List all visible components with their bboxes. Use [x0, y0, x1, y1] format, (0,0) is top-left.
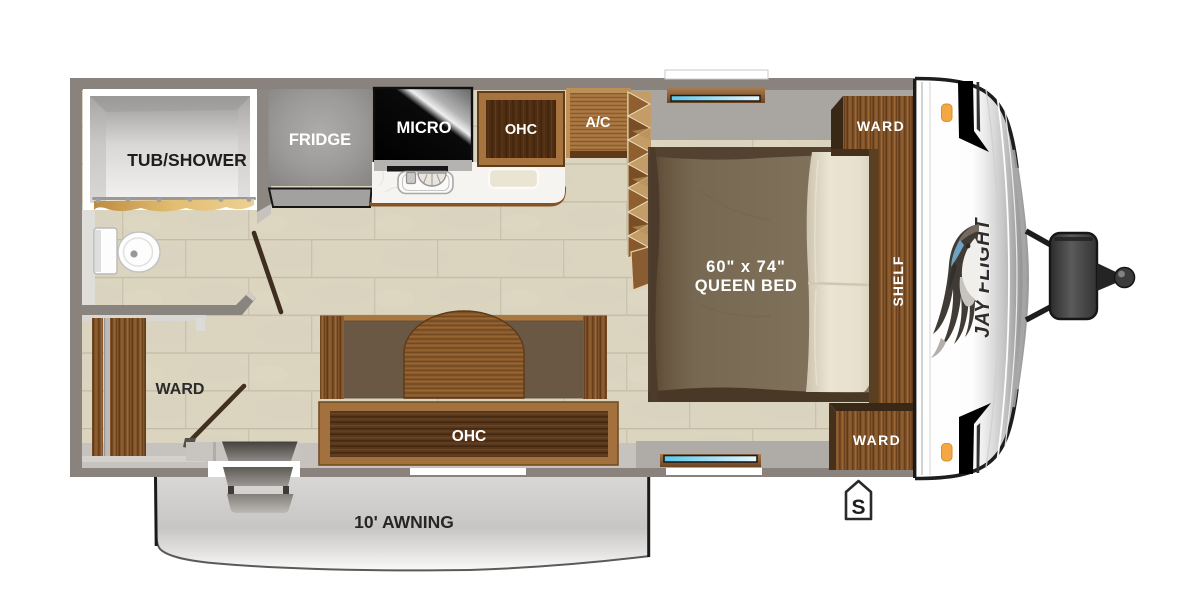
svg-text:60" x 74": 60" x 74": [706, 258, 786, 276]
svg-text:S: S: [851, 496, 865, 519]
svg-text:TUB/SHOWER: TUB/SHOWER: [127, 150, 247, 170]
svg-text:WARD: WARD: [857, 118, 905, 134]
svg-text:10' AWNING: 10' AWNING: [354, 512, 454, 532]
svg-text:FRIDGE: FRIDGE: [289, 131, 351, 149]
svg-text:QUEEN BED: QUEEN BED: [695, 277, 798, 295]
svg-text:OHC: OHC: [452, 428, 486, 445]
svg-text:MICRO: MICRO: [397, 119, 452, 137]
svg-text:SHELF: SHELF: [890, 256, 906, 307]
svg-text:A/C: A/C: [586, 115, 612, 131]
svg-text:WARD: WARD: [853, 432, 901, 448]
svg-text:OHC: OHC: [505, 122, 538, 138]
svg-text:WARD: WARD: [156, 381, 205, 398]
